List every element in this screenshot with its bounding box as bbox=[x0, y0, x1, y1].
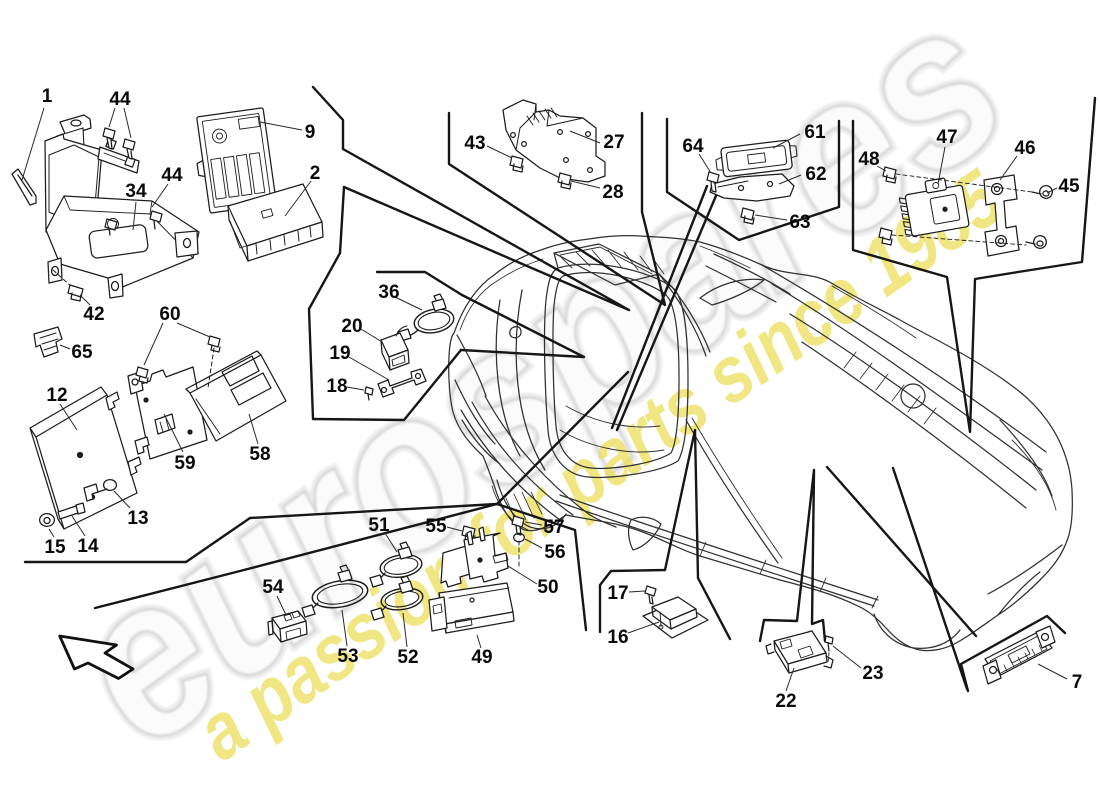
svg-text:56: 56 bbox=[544, 542, 565, 563]
svg-text:28: 28 bbox=[602, 182, 623, 203]
svg-text:55: 55 bbox=[425, 516, 447, 537]
svg-text:9: 9 bbox=[305, 122, 316, 143]
svg-text:64: 64 bbox=[682, 136, 704, 157]
svg-text:14: 14 bbox=[77, 536, 99, 557]
svg-text:63: 63 bbox=[789, 212, 810, 233]
svg-text:58: 58 bbox=[249, 444, 270, 465]
svg-text:42: 42 bbox=[83, 304, 104, 325]
svg-text:48: 48 bbox=[858, 149, 879, 170]
svg-text:1: 1 bbox=[42, 86, 53, 107]
svg-text:36: 36 bbox=[378, 282, 399, 303]
svg-text:23: 23 bbox=[862, 663, 883, 684]
svg-text:44: 44 bbox=[109, 89, 131, 110]
svg-text:12: 12 bbox=[46, 385, 67, 406]
svg-text:54: 54 bbox=[262, 577, 284, 598]
svg-text:15: 15 bbox=[44, 537, 66, 558]
svg-text:53: 53 bbox=[337, 646, 358, 667]
svg-text:44: 44 bbox=[161, 165, 183, 186]
svg-text:50: 50 bbox=[537, 577, 558, 598]
svg-text:2: 2 bbox=[310, 163, 321, 184]
svg-text:22: 22 bbox=[775, 691, 796, 712]
svg-text:17: 17 bbox=[607, 583, 628, 604]
svg-text:27: 27 bbox=[603, 132, 624, 153]
svg-text:65: 65 bbox=[71, 342, 93, 363]
svg-text:49: 49 bbox=[471, 647, 492, 668]
svg-text:57: 57 bbox=[543, 517, 564, 538]
svg-text:19: 19 bbox=[329, 343, 350, 364]
svg-text:13: 13 bbox=[127, 508, 148, 529]
svg-text:62: 62 bbox=[805, 164, 826, 185]
svg-text:45: 45 bbox=[1058, 176, 1080, 197]
svg-text:47: 47 bbox=[936, 127, 957, 148]
svg-text:7: 7 bbox=[1072, 672, 1083, 693]
svg-text:59: 59 bbox=[174, 453, 195, 474]
svg-text:52: 52 bbox=[397, 647, 418, 668]
svg-text:43: 43 bbox=[464, 133, 485, 154]
svg-text:46: 46 bbox=[1014, 138, 1035, 159]
svg-text:34: 34 bbox=[125, 181, 147, 202]
svg-text:61: 61 bbox=[804, 122, 826, 143]
svg-text:51: 51 bbox=[368, 515, 390, 536]
svg-text:18: 18 bbox=[326, 376, 347, 397]
svg-text:16: 16 bbox=[607, 627, 628, 648]
svg-text:60: 60 bbox=[159, 304, 180, 325]
svg-text:20: 20 bbox=[341, 316, 362, 337]
